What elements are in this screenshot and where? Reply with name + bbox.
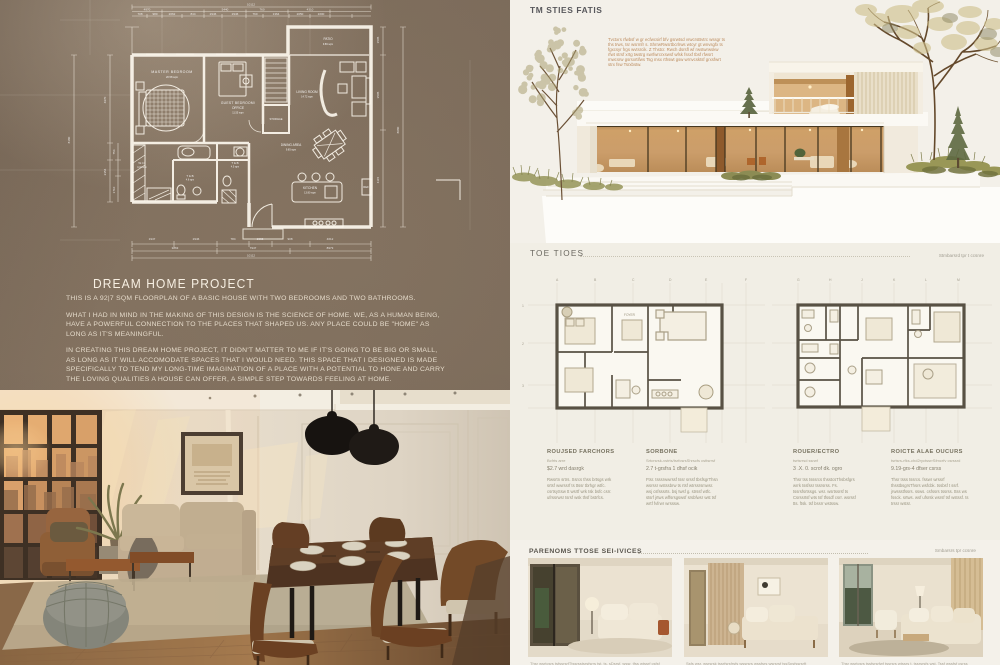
svg-text:MASTER BEDROOM: MASTER BEDROOM: [151, 70, 193, 74]
svg-text:F: F: [745, 278, 747, 282]
svg-text:2050: 2050: [297, 12, 304, 16]
svg-text:2354: 2354: [103, 168, 107, 175]
svg-text:1947: 1947: [149, 237, 156, 241]
svg-text:8080: 8080: [396, 126, 400, 133]
svg-text:OFFICE: OFFICE: [232, 106, 245, 110]
svg-text:2946: 2946: [193, 237, 200, 241]
svg-text:STORAGE: STORAGE: [269, 117, 282, 121]
svg-text:908: 908: [287, 237, 292, 241]
svg-text:9.85 sqm: 9.85 sqm: [286, 149, 296, 152]
svg-text:1710: 1710: [112, 186, 116, 193]
svg-text:1364: 1364: [273, 12, 280, 16]
svg-text:980: 980: [152, 12, 157, 16]
svg-text:J: J: [861, 278, 863, 282]
svg-text:3863: 3863: [172, 246, 179, 250]
svg-text:14.72 sqm: 14.72 sqm: [301, 96, 313, 99]
svg-text:T & B: T & B: [186, 174, 193, 178]
svg-text:2946: 2946: [232, 12, 239, 16]
svg-text:754: 754: [112, 149, 116, 154]
svg-text:LIVING ROOM: LIVING ROOM: [296, 90, 318, 94]
svg-text:A: A: [556, 278, 559, 282]
svg-text:FOYER: FOYER: [624, 313, 636, 317]
svg-text:PATIO: PATIO: [323, 37, 333, 41]
svg-text:844: 844: [190, 12, 195, 16]
svg-text:8180: 8180: [67, 136, 71, 143]
svg-text:M: M: [957, 278, 960, 282]
svg-text:8973: 8973: [327, 246, 334, 250]
svg-text:1: 1: [522, 304, 524, 308]
svg-text:3505: 3505: [376, 91, 380, 98]
svg-text:4970: 4970: [103, 96, 107, 103]
svg-text:708: 708: [137, 12, 142, 16]
svg-text:11.55 sqm: 11.55 sqm: [232, 112, 244, 115]
svg-text:E: E: [705, 278, 708, 282]
svg-text:760: 760: [259, 8, 264, 12]
svg-text:9.86 sqm: 9.86 sqm: [323, 43, 333, 46]
svg-text:C: C: [632, 278, 635, 282]
svg-text:DINING AREA: DINING AREA: [281, 143, 302, 147]
svg-text:D: D: [669, 278, 672, 282]
svg-text:4612: 4612: [327, 237, 334, 241]
svg-text:T & B: T & B: [231, 161, 238, 165]
svg-text:10112: 10112: [247, 254, 255, 258]
svg-text:20.58 sqm: 20.58 sqm: [166, 75, 178, 79]
svg-text:KITCHEN: KITCHEN: [303, 186, 318, 190]
svg-text:1600: 1600: [318, 12, 325, 16]
svg-text:4115: 4115: [376, 176, 380, 183]
svg-text:10112: 10112: [247, 3, 255, 7]
svg-text:784: 784: [230, 237, 235, 241]
svg-text:760: 760: [252, 12, 257, 16]
svg-text:K: K: [893, 278, 896, 282]
svg-text:1963: 1963: [257, 237, 264, 241]
svg-text:4970: 4970: [144, 8, 151, 12]
svg-text:G: G: [797, 278, 800, 282]
svg-text:3: 3: [522, 384, 524, 388]
svg-text:2946: 2946: [210, 12, 217, 16]
svg-text:L: L: [925, 278, 927, 282]
svg-text:4.5 sqm: 4.5 sqm: [231, 167, 239, 169]
svg-text:2: 2: [522, 342, 524, 346]
svg-text:H: H: [829, 278, 832, 282]
svg-text:4310: 4310: [307, 8, 314, 12]
svg-text:B: B: [594, 278, 597, 282]
svg-text:REF: REF: [363, 185, 369, 189]
svg-text:7947: 7947: [250, 246, 257, 250]
svg-text:2062: 2062: [169, 12, 176, 16]
svg-text:GUEST BEDROOM/: GUEST BEDROOM/: [221, 101, 255, 105]
svg-text:13.80 sqm: 13.80 sqm: [304, 192, 316, 195]
svg-text:1505: 1505: [376, 36, 380, 43]
svg-text:5440: 5440: [222, 8, 229, 12]
svg-text:4.6 sqm: 4.6 sqm: [186, 180, 194, 182]
